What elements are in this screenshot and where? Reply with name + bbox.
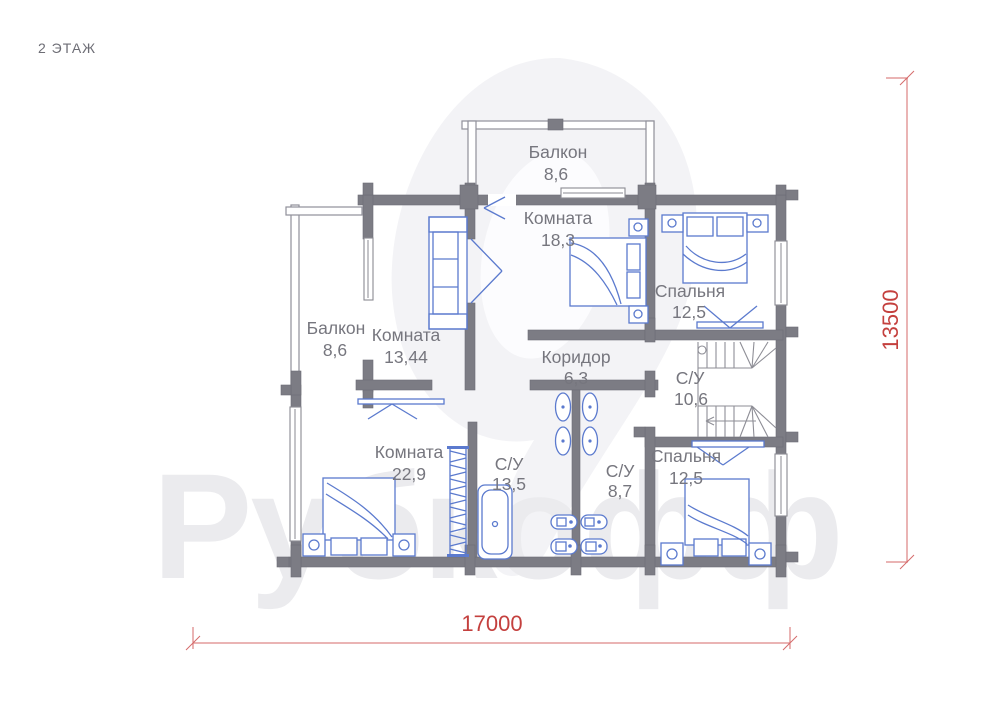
room-name: С/У	[495, 454, 525, 474]
dimension-width-label: 17000	[461, 611, 522, 636]
room-name: Комната	[524, 208, 593, 228]
room-area: 8,6	[544, 164, 568, 184]
room-area: 13,5	[492, 474, 526, 494]
floor-plan-page: Рубкофф	[0, 0, 1000, 707]
room-area: 8,6	[323, 340, 347, 360]
room-name: С/У	[606, 461, 636, 481]
bathtub-icon	[478, 485, 512, 559]
room-area: 22,9	[392, 464, 426, 484]
room-name: Балкон	[529, 142, 588, 162]
room-name: Спальня	[651, 446, 721, 466]
room-name: С/У	[676, 368, 706, 388]
room-area: 6,3	[564, 368, 588, 388]
dimension-height: 13500	[878, 71, 914, 569]
room-name: Комната	[372, 325, 441, 345]
room-area: 12,5	[672, 302, 706, 322]
room-name: Балкон	[307, 318, 366, 338]
dimension-height-label: 13500	[878, 289, 903, 350]
staircase	[698, 342, 776, 437]
room-area: 13,44	[384, 347, 428, 367]
dimension-width: 17000	[186, 611, 797, 650]
floor-title: 2 ЭТАЖ	[38, 40, 96, 56]
room-name: Комната	[375, 442, 444, 462]
room-area: 10,6	[674, 389, 708, 409]
room-name: Коридор	[541, 347, 610, 367]
room-name: Спальня	[655, 281, 725, 301]
room-area: 18,3	[541, 230, 575, 250]
room-area: 8,7	[608, 481, 632, 501]
sofa-icon	[429, 217, 467, 329]
floor-plan-canvas: Рубкофф	[0, 0, 1000, 707]
room-area: 12,5	[669, 468, 703, 488]
